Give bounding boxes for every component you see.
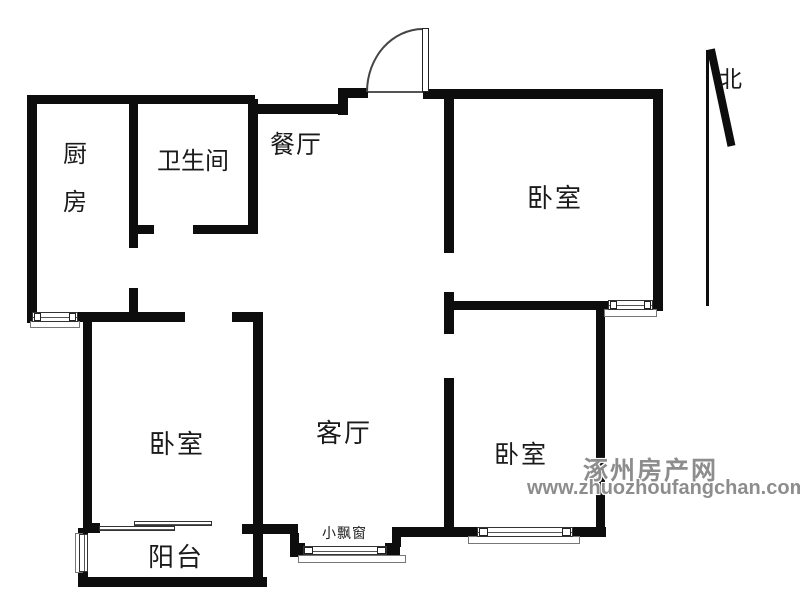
bay-window-sill bbox=[468, 536, 580, 544]
sliding-door-symbol bbox=[99, 526, 175, 531]
wall-segment bbox=[596, 301, 605, 537]
room-label-kitchen: 厨房 bbox=[63, 131, 91, 227]
window-symbol bbox=[477, 527, 573, 537]
wall-segment bbox=[392, 527, 448, 537]
room-label-living: 客厅 bbox=[316, 413, 372, 450]
wall-segment bbox=[444, 99, 454, 253]
window-cap bbox=[610, 301, 617, 309]
wall-segment bbox=[27, 95, 255, 104]
room-label-bay-window: 小飘窗 bbox=[322, 523, 367, 543]
window-cap bbox=[69, 313, 76, 321]
wall-segment bbox=[129, 225, 154, 234]
wall-segment bbox=[83, 312, 92, 532]
wall-segment bbox=[253, 312, 263, 577]
window-cap bbox=[34, 313, 41, 321]
north-label: 北 bbox=[719, 60, 742, 94]
room-label-balcony: 阳台 bbox=[148, 537, 204, 574]
room-label-bedroom-north: 卧室 bbox=[527, 178, 583, 215]
wall-segment bbox=[338, 88, 368, 98]
window-cap bbox=[479, 528, 488, 536]
window-symbol bbox=[303, 546, 387, 555]
wall-segment bbox=[444, 292, 454, 334]
wall-segment bbox=[129, 288, 138, 314]
room-label-bedroom-south: 卧室 bbox=[494, 435, 548, 471]
wall-segment bbox=[423, 89, 663, 99]
window-sill bbox=[604, 309, 657, 317]
bay-window-sill bbox=[298, 555, 406, 563]
wall-segment bbox=[248, 99, 258, 234]
watermark-site-url: www.zhuozhoufangchan.com bbox=[527, 477, 800, 500]
window-cap bbox=[562, 528, 571, 536]
floor-plan: 北 厨房 卫生间 餐厅 卧室 卧室 客厅 卧室 阳台 小飘窗 涿州房产网 www… bbox=[0, 0, 800, 595]
wall-segment bbox=[444, 378, 454, 527]
room-label-dining: 餐厅 bbox=[270, 125, 322, 161]
entry-door-swing-arc bbox=[366, 28, 423, 92]
room-label-bedroom-west: 卧室 bbox=[149, 424, 205, 461]
window-cap bbox=[377, 547, 386, 554]
window-cap bbox=[644, 301, 651, 309]
sliding-door-symbol bbox=[134, 521, 212, 526]
window-sill bbox=[30, 321, 80, 328]
wall-segment bbox=[653, 89, 663, 311]
window-symbol bbox=[79, 534, 88, 572]
wall-segment bbox=[448, 301, 611, 310]
room-label-bathroom: 卫生间 bbox=[157, 141, 229, 176]
window-cap bbox=[304, 547, 313, 554]
wall-segment bbox=[27, 95, 37, 323]
north-arrow-shaft bbox=[706, 50, 709, 306]
entry-door-leaf bbox=[422, 28, 429, 92]
wall-segment bbox=[78, 577, 267, 587]
wall-segment bbox=[248, 104, 346, 114]
